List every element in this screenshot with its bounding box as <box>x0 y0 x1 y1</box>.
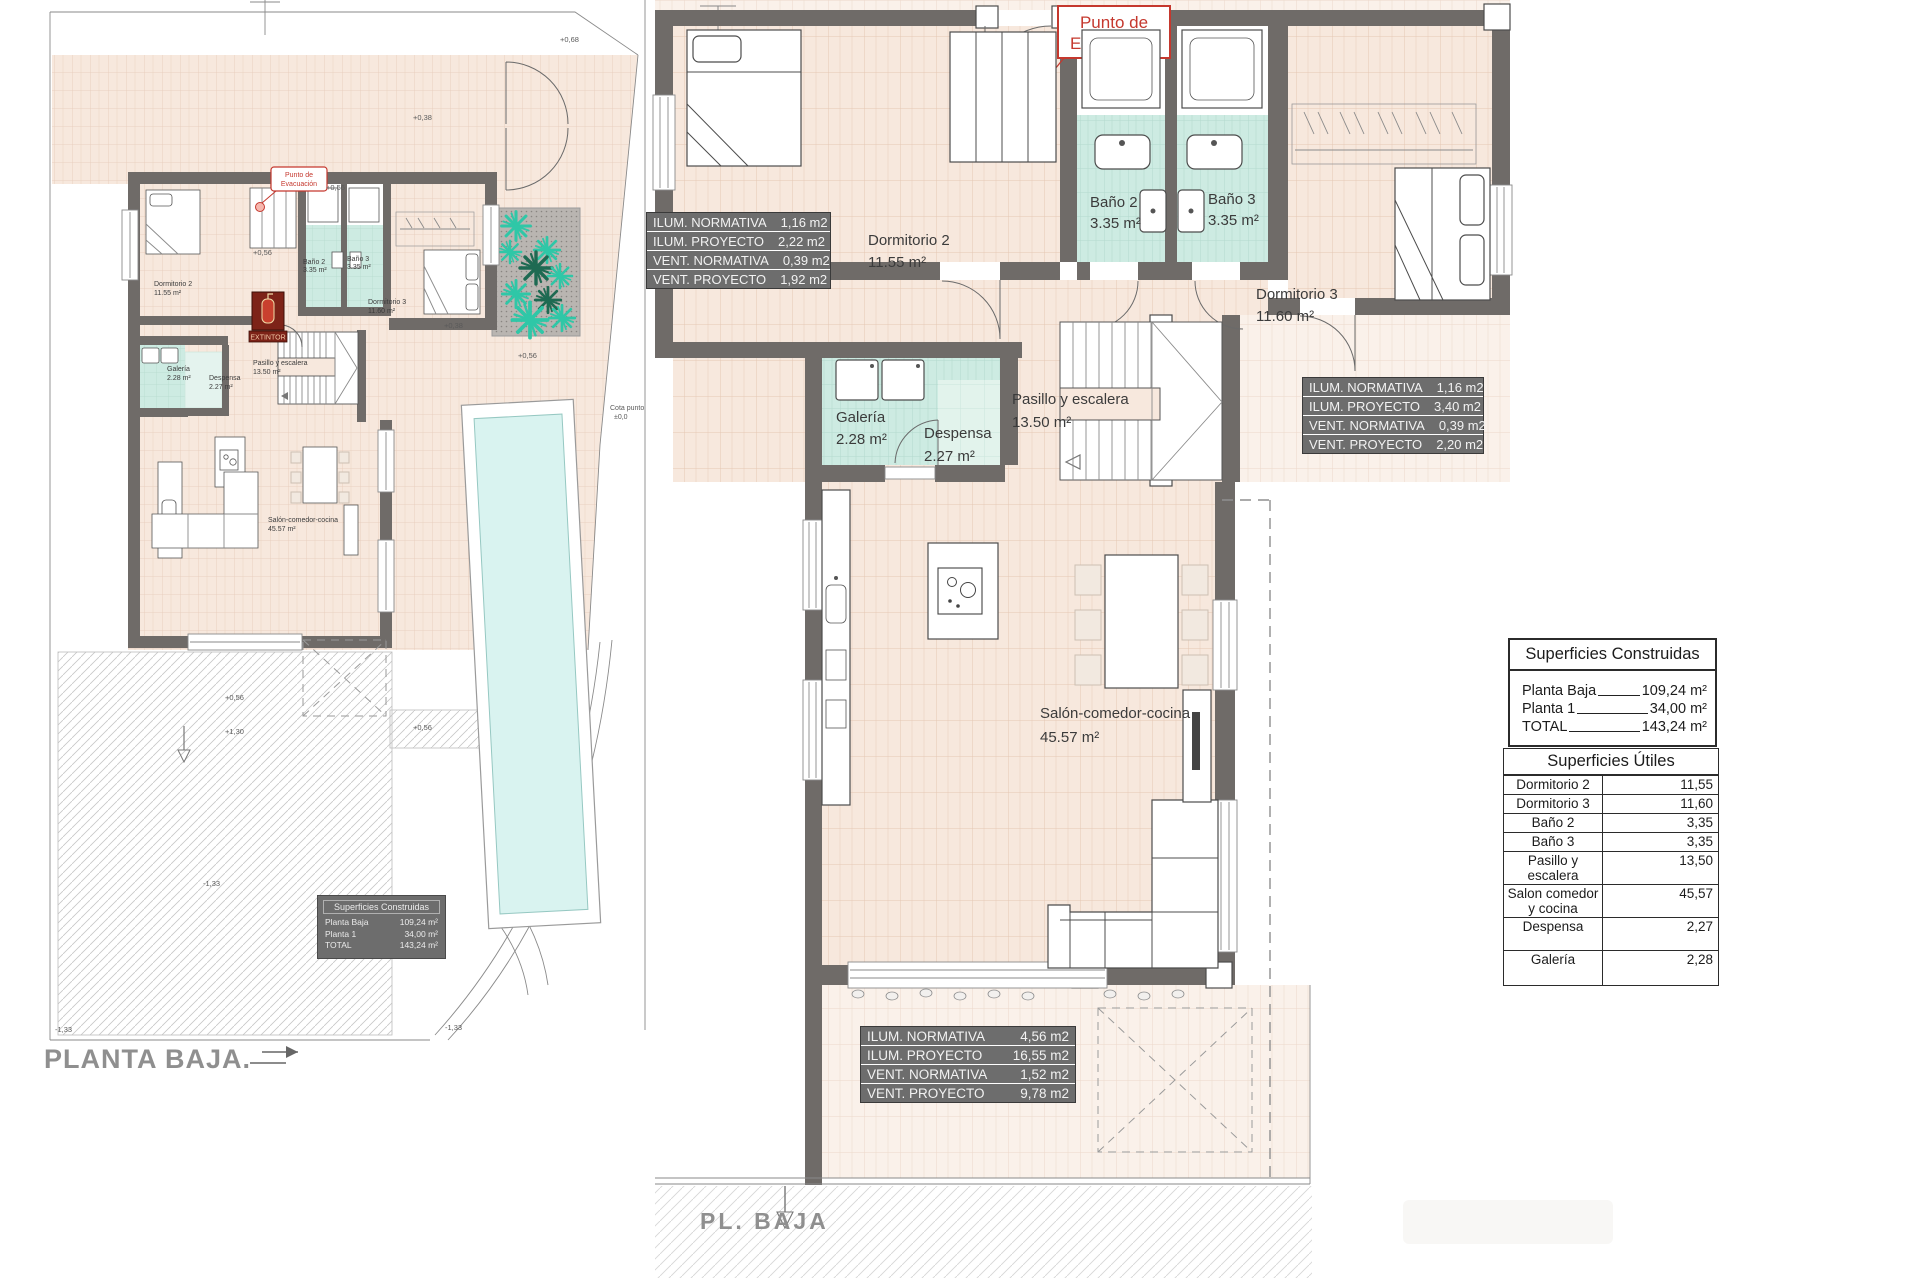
row-label: TOTAL <box>1522 719 1567 735</box>
svg-text:2.28 m²: 2.28 m² <box>836 431 887 448</box>
vent-value: 0,39 m2 <box>783 253 830 268</box>
right-plan-title: PL. BAJA <box>700 1208 829 1235</box>
svg-text:Despensa: Despensa <box>209 375 241 382</box>
table-row: Dormitorio 211,55 <box>1504 775 1718 794</box>
row-label: Pasillo y escalera <box>1504 852 1603 884</box>
summary-label: TOTAL <box>325 940 352 952</box>
svg-text:11.60 m²: 11.60 m² <box>1256 308 1314 325</box>
svg-text:13.50 m²: 13.50 m² <box>253 369 281 376</box>
table-row: Despensa2,27 <box>1504 917 1718 950</box>
left-plan-title: PLANTA BAJA. <box>44 1044 251 1075</box>
row-value: 45,57 <box>1603 885 1718 917</box>
row-value: 13,50 <box>1603 852 1718 884</box>
svg-text:+0,68: +0,68 <box>560 35 579 44</box>
vent-label: VENT. PROYECTO <box>1309 437 1422 452</box>
svg-text:Pasillo y escalera: Pasillo y escalera <box>1012 391 1129 408</box>
vent-value: 1,16 m2 <box>781 215 828 230</box>
summary-value: 34,00 m² <box>404 929 438 941</box>
svg-text:-1,33: -1,33 <box>203 879 220 888</box>
row-value: 3,35 <box>1603 833 1718 851</box>
svg-text:Dormitorio 2: Dormitorio 2 <box>154 281 192 288</box>
svg-text:Salón-comedor-cocina: Salón-comedor-cocina <box>268 517 338 524</box>
svg-text:2.28 m²: 2.28 m² <box>167 375 191 382</box>
table-row: VENT. PROYECTO1,92 m2 <box>647 269 830 288</box>
table-row: Salon comedor y cocina45,57 <box>1504 884 1718 917</box>
svg-text:+0,38: +0,38 <box>413 113 432 122</box>
vent-value: 2,22 m2 <box>778 234 825 249</box>
svg-text:3.35 m²: 3.35 m² <box>303 267 327 274</box>
left-evac-line1: Punto de <box>285 172 313 179</box>
svg-text:Dormitorio 3: Dormitorio 3 <box>368 299 406 306</box>
vent-value: 0,39 m2 <box>1439 418 1486 433</box>
table-title: Superficies Útiles <box>1504 749 1718 775</box>
superficies-construidas-table: Superficies Construidas Planta Baja109,2… <box>1508 638 1717 747</box>
left-summary-box: Superficies Construidas Planta Baja109,2… <box>317 895 446 959</box>
svg-text:+0,38: +0,38 <box>444 321 463 330</box>
table-row: VENT. NORMATIVA0,39 m2 <box>1303 415 1483 434</box>
svg-text:Despensa: Despensa <box>924 425 992 442</box>
vent-value: 3,40 m2 <box>1434 399 1481 414</box>
row-label: Dormitorio 2 <box>1504 776 1603 794</box>
vent-label: VENT. PROYECTO <box>653 272 766 287</box>
summary-title: Superficies Construidas <box>323 900 440 914</box>
table-row: Planta Baja109,24 m² <box>1522 683 1707 699</box>
table-row: ILUM. PROYECTO2,22 m2 <box>647 231 830 250</box>
vent-value: 16,55 m2 <box>1013 1048 1069 1063</box>
extintor-label: EXTINTOR <box>250 335 285 342</box>
summary-label: Planta 1 <box>325 929 356 941</box>
table-row: VENT. PROYECTO9,78 m2 <box>861 1083 1075 1102</box>
svg-text:+0,56: +0,56 <box>326 183 345 192</box>
row-label: Despensa <box>1504 918 1603 950</box>
svg-text:Baño 3: Baño 3 <box>347 256 369 263</box>
vent-label: ILUM. PROYECTO <box>867 1048 982 1063</box>
left-stairs <box>278 332 358 404</box>
right-evac-line1: Punto de <box>1080 13 1148 32</box>
svg-text:11.55 m²: 11.55 m² <box>154 290 182 297</box>
vent-label: ILUM. NORMATIVA <box>867 1029 985 1044</box>
row-value: 2,27 <box>1603 918 1718 950</box>
vent-value: 2,20 m2 <box>1436 437 1483 452</box>
row-value: 11,60 <box>1603 795 1718 813</box>
svg-text:+0,56: +0,56 <box>518 351 537 360</box>
summary-label: Planta Baja <box>325 917 368 929</box>
table-title: Superficies Construidas <box>1510 640 1715 671</box>
vent-table-salon: ILUM. NORMATIVA4,56 m2 ILUM. PROYECTO16,… <box>860 1026 1076 1103</box>
vent-label: ILUM. PROYECTO <box>1309 399 1420 414</box>
table-row: ILUM. PROYECTO16,55 m2 <box>861 1045 1075 1064</box>
table-row: ILUM. NORMATIVA1,16 m2 <box>1303 378 1483 396</box>
svg-text:±0,0: ±0,0 <box>614 414 628 421</box>
summary-row: Planta 134,00 m² <box>318 929 445 941</box>
right-plan: Punto de Evacuación <box>645 0 1512 1278</box>
blueprint-canvas: EXTINTOR Punto de Evacuación Dormitorio … <box>0 0 1920 1280</box>
vent-value: 9,78 m2 <box>1020 1086 1069 1101</box>
svg-text:11.60 m²: 11.60 m² <box>368 308 396 315</box>
vent-value: 1,92 m2 <box>780 272 827 287</box>
svg-text:+0,56: +0,56 <box>225 693 244 702</box>
table-row: Dormitorio 311,60 <box>1504 794 1718 813</box>
row-value: 109,24 m² <box>1642 683 1707 699</box>
table-row: Baño 33,35 <box>1504 832 1718 851</box>
svg-text:2.27 m²: 2.27 m² <box>924 448 975 465</box>
row-value: 143,24 m² <box>1642 719 1707 735</box>
row-label: Galería <box>1504 951 1603 985</box>
row-label: Planta 1 <box>1522 701 1575 717</box>
table-row: VENT. NORMATIVA0,39 m2 <box>647 250 830 269</box>
table-row: VENT. NORMATIVA1,52 m2 <box>861 1064 1075 1083</box>
left-evac-line2: Evacuación <box>281 181 317 188</box>
svg-text:Baño 2: Baño 2 <box>303 259 325 266</box>
row-value: 3,35 <box>1603 814 1718 832</box>
svg-text:Pasillo y escalera: Pasillo y escalera <box>253 360 308 367</box>
vent-label: VENT. NORMATIVA <box>867 1067 987 1082</box>
table-row: Baño 23,35 <box>1504 813 1718 832</box>
table-row: TOTAL143,24 m² <box>1522 719 1707 735</box>
svg-text:11.55 m²: 11.55 m² <box>868 254 926 271</box>
vent-value: 1,16 m2 <box>1437 380 1484 395</box>
vent-table-dorm3: ILUM. NORMATIVA1,16 m2 ILUM. PROYECTO3,4… <box>1302 377 1484 454</box>
row-label: Salon comedor y cocina <box>1504 885 1603 917</box>
svg-text:Salón-comedor-cocina: Salón-comedor-cocina <box>1040 705 1191 722</box>
vent-label: ILUM. PROYECTO <box>653 234 764 249</box>
row-label: Baño 3 <box>1504 833 1603 851</box>
row-value: 34,00 m² <box>1650 701 1707 717</box>
svg-text:Baño 3: Baño 3 <box>1208 191 1256 208</box>
faded-logo-area <box>1403 1200 1613 1244</box>
svg-text:Baño 2: Baño 2 <box>1090 194 1138 211</box>
table-row: ILUM. NORMATIVA1,16 m2 <box>647 213 830 231</box>
vent-table-dorm2: ILUM. NORMATIVA1,16 m2 ILUM. PROYECTO2,2… <box>646 212 831 289</box>
vent-label: ILUM. NORMATIVA <box>653 215 767 230</box>
table-row: VENT. PROYECTO2,20 m2 <box>1303 434 1483 453</box>
table-row: Planta 134,00 m² <box>1522 701 1707 717</box>
table-row: ILUM. NORMATIVA4,56 m2 <box>861 1027 1075 1045</box>
blank-patch <box>1348 1172 1716 1276</box>
row-label: Baño 2 <box>1504 814 1603 832</box>
summary-value: 109,24 m² <box>400 917 438 929</box>
svg-text:3.35 m²: 3.35 m² <box>1090 215 1141 232</box>
summary-value: 143,24 m² <box>400 940 438 952</box>
vent-label: VENT. PROYECTO <box>867 1086 985 1101</box>
svg-text:45.57 m²: 45.57 m² <box>268 526 296 533</box>
vent-value: 1,52 m2 <box>1020 1067 1069 1082</box>
svg-text:45.57 m²: 45.57 m² <box>1040 729 1099 746</box>
summary-row: Planta Baja109,24 m² <box>318 917 445 929</box>
svg-text:3.35 m²: 3.35 m² <box>1208 212 1259 229</box>
svg-text:3.35 m²: 3.35 m² <box>347 264 371 271</box>
svg-text:Galería: Galería <box>836 409 886 426</box>
svg-text:+0,56: +0,56 <box>413 723 432 732</box>
svg-text:13.50 m²: 13.50 m² <box>1012 414 1071 431</box>
vent-label: VENT. NORMATIVA <box>1309 418 1425 433</box>
table-row: Galería2,28 <box>1504 950 1718 985</box>
svg-text:-1,33: -1,33 <box>445 1023 462 1032</box>
vent-label: VENT. NORMATIVA <box>653 253 769 268</box>
row-label: Planta Baja <box>1522 683 1596 699</box>
vent-label: ILUM. NORMATIVA <box>1309 380 1423 395</box>
svg-text:-1,33: -1,33 <box>55 1025 72 1034</box>
row-label: Dormitorio 3 <box>1504 795 1603 813</box>
superficies-utiles-table: Superficies Útiles Dormitorio 211,55 Dor… <box>1503 748 1719 986</box>
vent-value: 4,56 m2 <box>1020 1029 1069 1044</box>
svg-text:2.27 m²: 2.27 m² <box>209 384 233 391</box>
svg-text:+1,30: +1,30 <box>225 727 244 736</box>
svg-text:Galería: Galería <box>167 366 190 373</box>
svg-text:+0,56: +0,56 <box>253 248 272 257</box>
svg-text:Dormitorio 2: Dormitorio 2 <box>868 232 950 249</box>
table-row: ILUM. PROYECTO3,40 m2 <box>1303 396 1483 415</box>
row-value: 2,28 <box>1603 951 1718 985</box>
table-row: Pasillo y escalera13,50 <box>1504 851 1718 884</box>
row-value: 11,55 <box>1603 776 1718 794</box>
svg-text:Cota punto: Cota punto <box>610 405 644 412</box>
svg-text:Dormitorio 3: Dormitorio 3 <box>1256 286 1338 303</box>
summary-row: TOTAL143,24 m² <box>318 940 445 952</box>
